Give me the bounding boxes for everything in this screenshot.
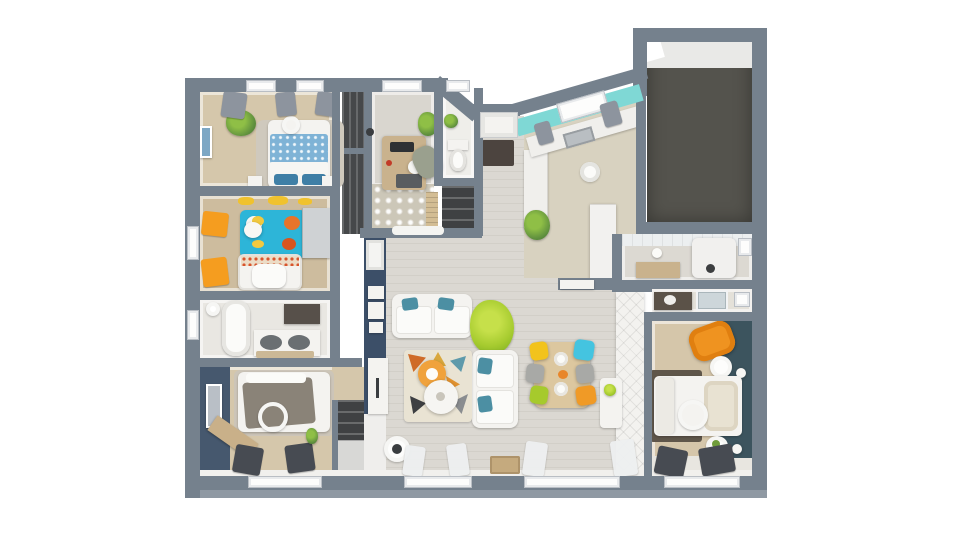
kids-rug-shape-orange-2 (282, 238, 296, 250)
hall-wardrobe-closet (342, 88, 364, 234)
wall-left-rooms-right (330, 186, 340, 367)
master-ring-pendant (678, 400, 708, 430)
bedroom-1-pillow-left (274, 174, 298, 185)
sofa-horizontal-pillow-teal-2 (437, 297, 455, 311)
dining-chair-gray-right (575, 363, 595, 384)
laundry-wall-light (652, 248, 662, 258)
bedroom-1-window-2 (296, 80, 324, 92)
office-pattern-floor (372, 184, 434, 230)
navy-wall-shelf-3 (369, 322, 383, 333)
bedroom-3-plant (306, 428, 318, 444)
office-monitor (390, 142, 414, 152)
navy-wall-door (366, 240, 384, 270)
dining-chair-lime (529, 385, 549, 405)
wall-master-left (644, 321, 652, 478)
kids-window-left (187, 226, 199, 260)
kids-rug-elephant-orange (284, 216, 300, 230)
coffee-table-orange-deco (426, 368, 438, 380)
kids-wall-decal-3 (298, 198, 312, 205)
kitchen-wall-shelf (560, 280, 594, 289)
office-wall-clock (366, 128, 374, 136)
living-plant-large (470, 300, 514, 354)
wall-office-left (364, 88, 372, 234)
wc-plant (444, 114, 458, 128)
bedroom-3-doorway-floor (332, 367, 364, 400)
ac-vent (392, 226, 444, 235)
shower-window (734, 292, 750, 307)
wall-wc-bottom (434, 178, 483, 186)
dining-chair-cyan (573, 339, 596, 362)
closet-passage-floor (364, 414, 386, 470)
master-curtain-left (653, 445, 688, 479)
wall-dressing-top (612, 282, 652, 292)
bathroom-sink-left (260, 335, 282, 350)
outer-wall-bottom-face (185, 489, 767, 498)
dining-candle-1 (554, 352, 568, 366)
wall-closet-stub (364, 414, 386, 418)
laundry-window (738, 238, 752, 256)
master-pillow-stack (704, 381, 738, 431)
wall-shower-master (644, 312, 767, 321)
sofa-horizontal-pillow-teal-1 (401, 297, 419, 311)
living-curtain-2 (446, 443, 470, 477)
entry-shoe-closet (442, 186, 474, 230)
kids-wall-decal-1 (238, 197, 254, 205)
laundry-water-heater (692, 238, 736, 278)
toilet-bowl (450, 149, 466, 171)
wall-office-wc (434, 88, 443, 186)
dining-chair-yellow (529, 341, 549, 361)
kitchen-ceiling-light (580, 162, 600, 182)
kids-wall-decal-2 (268, 196, 288, 205)
bathroom-sink-right (288, 335, 310, 350)
garage-wall-top (633, 28, 767, 42)
office-radiator (426, 192, 438, 228)
bedroom-1-window-1 (246, 80, 276, 92)
kids-curtain-bottom (200, 257, 229, 288)
navy-wall-shelf-2 (368, 302, 384, 319)
living-floor-lamp-center (392, 444, 402, 454)
bedroom-1-curtain-2 (275, 91, 297, 117)
dining-chair-orange (575, 385, 597, 407)
master-duvet-fold (656, 378, 674, 434)
bedroom-3-ring-pendant (258, 402, 288, 432)
master-side-table-top (710, 356, 732, 378)
bedroom-1-wall-art (200, 126, 212, 158)
living-shoe-closet (338, 400, 364, 440)
shower-stall (696, 290, 728, 311)
master-curtain-right (698, 443, 736, 476)
entry-doormat (482, 140, 514, 166)
bathroom-pendant (206, 302, 220, 316)
kids-curtain-top (201, 211, 229, 238)
bedroom-3-curtain-right (284, 442, 316, 474)
navy-wall-shelf-1 (368, 286, 384, 299)
office-window (382, 80, 422, 92)
bedroom-1-duvet (270, 134, 328, 164)
dining-candle-2 (554, 382, 568, 396)
living-window-right (524, 476, 620, 488)
sofa-horizontal-cushion-left (396, 306, 432, 334)
sofa-vertical-pillow-teal-1 (477, 357, 493, 375)
wall-bed3-closet (332, 400, 338, 470)
hall-wardrobe-divider (342, 148, 364, 154)
kids-wardrobe (302, 208, 330, 258)
bedroom-1-nightstand-left (248, 176, 262, 186)
bedroom-3-curtain-left (232, 444, 264, 476)
dining-chair-gray-left (525, 363, 545, 384)
outer-wall-right (752, 28, 767, 490)
wall-bed1-kids (197, 186, 340, 196)
laundry-heater-vent (706, 264, 715, 273)
bath-mat (256, 351, 314, 358)
outer-wall-left (185, 78, 200, 498)
office-red-mug (386, 160, 392, 166)
bathtub (222, 300, 250, 356)
bathroom-window (187, 310, 199, 340)
kids-crib-drape (252, 264, 286, 288)
bedroom-1-canopy-ring (282, 116, 300, 134)
living-closet-cabinet (338, 440, 364, 470)
front-door (480, 112, 518, 138)
living-curtain-3 (522, 441, 549, 478)
kids-rug-shape-yellow-2 (252, 240, 264, 248)
laundry-bench (636, 262, 680, 278)
garage-floor (647, 42, 752, 222)
wall-bed1-right (332, 78, 340, 190)
bedroom-3-window (248, 476, 322, 488)
wc-window (446, 80, 470, 92)
master-window (664, 476, 740, 488)
master-deco-ball-bottom (732, 444, 742, 454)
wall-kitchen-garage (636, 88, 646, 230)
bathroom-mirror (284, 304, 320, 324)
living-curtain-4 (610, 439, 639, 478)
bedroom-1-curtain-1 (220, 90, 247, 119)
coffee-table-white-deco (436, 392, 445, 401)
living-curtain-1 (402, 445, 426, 477)
wall-garage-bottom (636, 222, 767, 234)
wall-kids-bath (197, 291, 334, 300)
dining-bowl-orange (558, 370, 568, 379)
dressing-console-plant (604, 384, 616, 396)
sofa-vertical-pillow-teal-2 (477, 395, 493, 413)
living-doormat (490, 456, 520, 474)
navy-cabinet-handle (376, 378, 379, 398)
floorplan-canvas (0, 0, 960, 540)
bedroom-3-pillows (246, 373, 306, 383)
shower-vanity-sink (664, 295, 676, 305)
kitchen-plant (524, 210, 550, 240)
living-window-left (404, 476, 472, 488)
office-printer (396, 174, 422, 188)
kids-sheep-toy (244, 222, 262, 238)
